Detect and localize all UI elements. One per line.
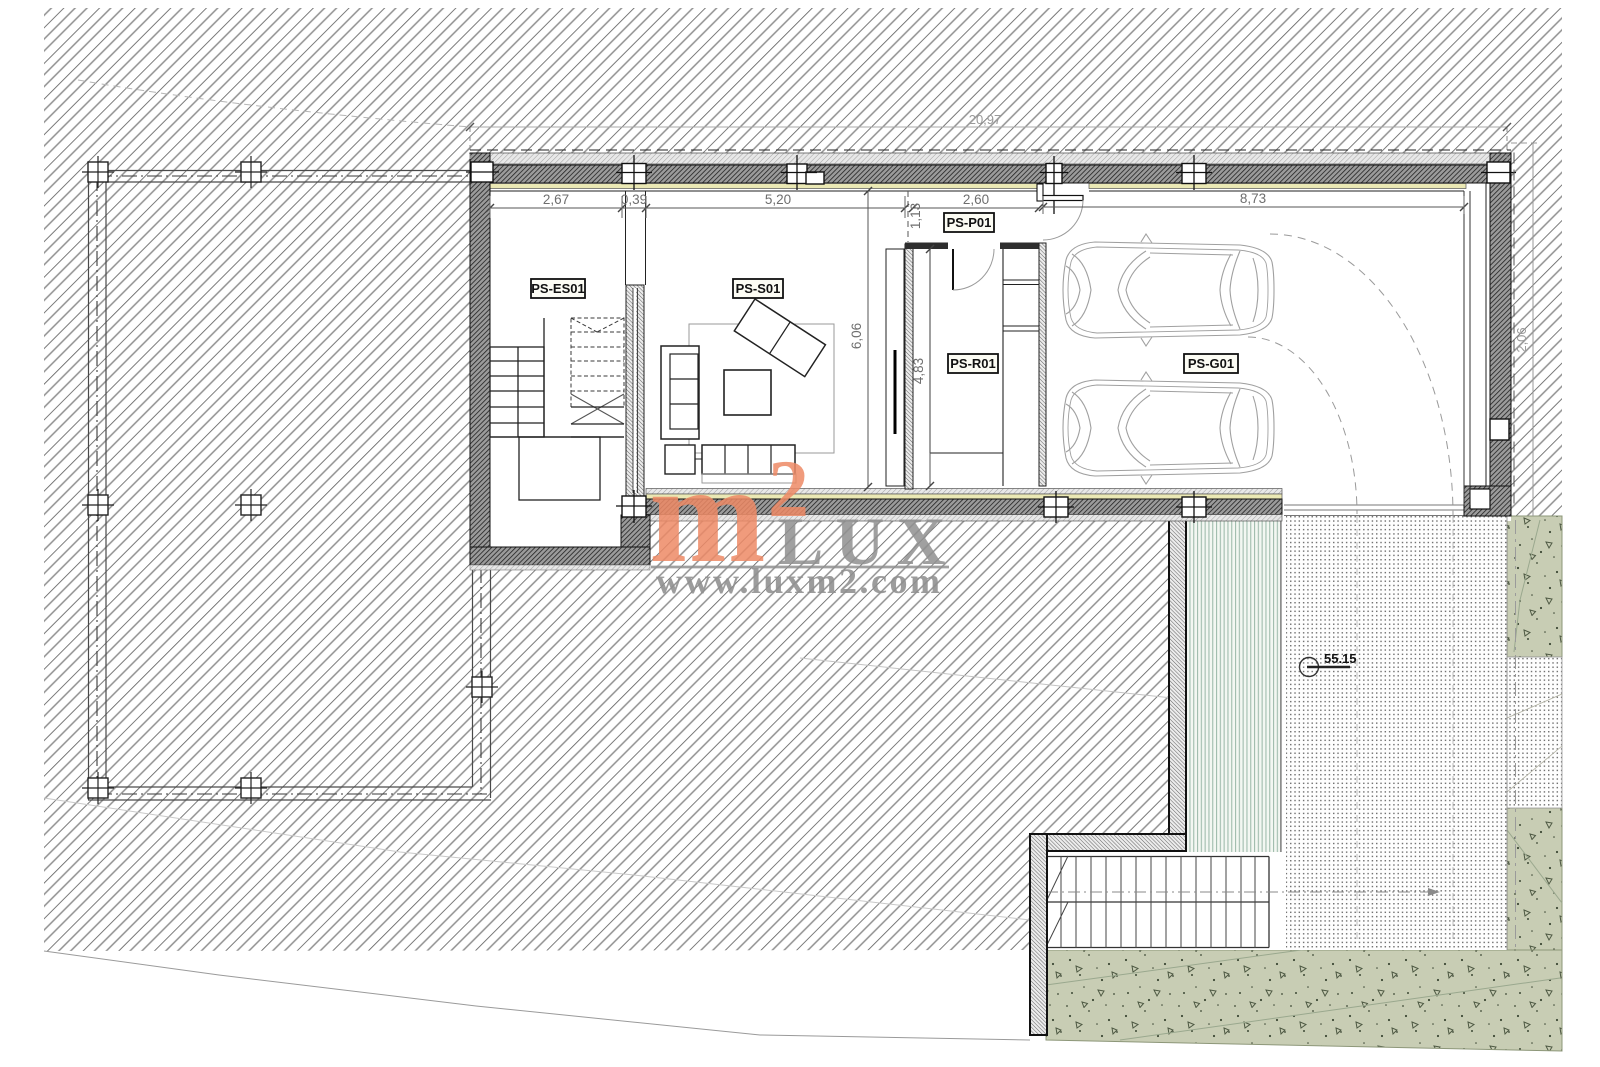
- svg-text:0,39: 0,39: [621, 192, 647, 207]
- svg-text:1,13: 1,13: [908, 203, 923, 229]
- svg-text:PS-G01: PS-G01: [1188, 356, 1234, 371]
- svg-text:2,06: 2,06: [1514, 327, 1529, 352]
- svg-text:PS-S01: PS-S01: [736, 281, 781, 296]
- svg-text:20,97: 20,97: [969, 112, 1002, 127]
- svg-text:PS-ES01: PS-ES01: [531, 281, 584, 296]
- svg-text:55.15: 55.15: [1324, 651, 1357, 666]
- svg-text:PS-R01: PS-R01: [950, 356, 996, 371]
- svg-text:2,60: 2,60: [963, 192, 989, 207]
- svg-text:8,73: 8,73: [1240, 191, 1266, 206]
- svg-text:www.luxm2.com: www.luxm2.com: [656, 561, 943, 601]
- svg-text:6,06: 6,06: [849, 323, 864, 349]
- svg-text:2,67: 2,67: [543, 192, 569, 207]
- svg-text:PS-P01: PS-P01: [947, 215, 992, 230]
- svg-text:4,83: 4,83: [911, 358, 926, 384]
- svg-text:5,20: 5,20: [765, 192, 791, 207]
